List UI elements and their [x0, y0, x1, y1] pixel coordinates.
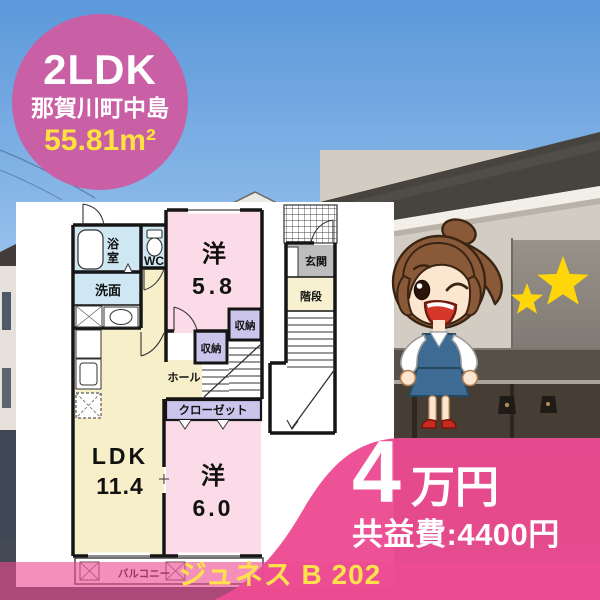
common-fee: 共益費:4400円: [352, 518, 598, 552]
rent-unit: 万円: [411, 466, 499, 510]
property-flyer: 浴 室 WC 洗面 洋 5.8 収納 収納 ホール クローゼット LDK 11.…: [0, 0, 600, 600]
rent-price: 4 万円 共益費:4400円: [352, 428, 598, 552]
rent-amount: 4: [352, 428, 401, 516]
property-name: ジュネス B 202: [128, 553, 432, 593]
